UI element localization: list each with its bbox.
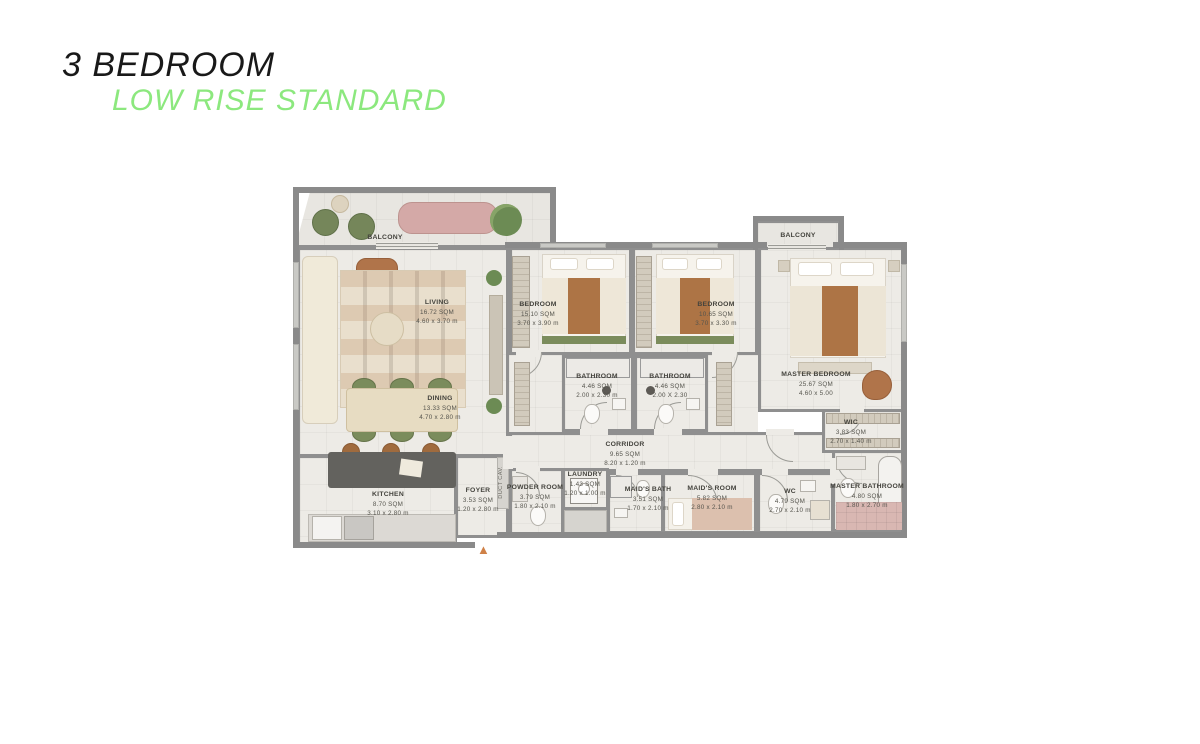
- sink: [836, 456, 866, 470]
- window: [293, 262, 299, 328]
- plant: [490, 204, 522, 236]
- door-opening: [616, 469, 638, 475]
- wardrobe: [636, 256, 652, 348]
- toilet: [658, 404, 674, 424]
- wall: [753, 216, 844, 221]
- wardrobe: [514, 362, 530, 426]
- window: [901, 264, 907, 342]
- wall: [293, 187, 556, 193]
- nightstand: [888, 260, 900, 272]
- pillow: [696, 258, 722, 270]
- balcony-table: [331, 195, 349, 213]
- room-label-wic: WIC 3.83 SQM 2.70 x 1.40 m: [830, 418, 871, 446]
- door-opening: [580, 428, 608, 435]
- window: [652, 243, 718, 248]
- sliding-door: [376, 243, 438, 248]
- service-shaft: [564, 510, 607, 534]
- door-opening: [516, 466, 540, 472]
- room-label-bedroom-2: BEDROOM 10.65 SQM 3.70 x 3.30 m: [695, 300, 736, 328]
- appliance: [312, 516, 342, 540]
- bed-runner: [568, 278, 600, 334]
- room-label-bathroom-2: BATHROOM 4.46 SQM 2.00 X 2.30: [649, 372, 691, 400]
- page-subtitle: LOW RISE STANDARD: [112, 84, 447, 118]
- armchair: [862, 370, 892, 400]
- door-opening: [840, 406, 864, 413]
- bed-runner: [822, 286, 858, 356]
- wall: [293, 542, 475, 548]
- wall: [497, 532, 907, 538]
- window: [540, 243, 606, 248]
- door-opening: [654, 428, 682, 435]
- room-label-laundry: LAUNDRY 1.43 SQM 1.20 x 1.00 m: [564, 470, 605, 498]
- room-label-maids-room: MAID'S ROOM 5.82 SQM 2.80 x 2.10 m: [687, 484, 736, 512]
- pillow: [586, 258, 614, 270]
- pillow: [672, 502, 684, 526]
- floorplan-page: 3 BEDROOM LOW RISE STANDARD: [0, 0, 1200, 744]
- sliding-door: [768, 245, 826, 249]
- door-opening: [762, 469, 788, 475]
- pillow: [798, 262, 832, 276]
- door-opening: [688, 469, 718, 475]
- appliance: [344, 516, 374, 540]
- kitchen-island: [328, 452, 456, 488]
- sofa: [302, 256, 338, 424]
- cutting-board: [399, 459, 423, 478]
- room-label-bathroom-1: BATHROOM 4.46 SQM 2.00 x 2.30 m: [576, 372, 618, 400]
- room-label-master-bathroom: MASTER BATHROOM 4.80 SQM 1.80 x 2.70 m: [830, 482, 904, 510]
- coffee-table: [370, 312, 404, 346]
- shower: [810, 500, 830, 520]
- plant: [486, 270, 502, 286]
- wardrobe: [716, 362, 732, 426]
- tv-unit: [489, 295, 503, 395]
- sun-lounger: [398, 202, 498, 234]
- wall: [753, 216, 758, 250]
- pillow: [550, 258, 578, 270]
- wall: [833, 242, 907, 248]
- room-label-bedroom-1: BEDROOM 15.10 SQM 3.70 x 3.90 m: [517, 300, 558, 328]
- room-label-dining: DINING 13.33 SQM 4.70 x 2.80 m: [419, 394, 460, 422]
- room-label-foyer: FOYER 3.53 SQM 1.20 x 2.80 m: [457, 486, 498, 514]
- plant: [486, 398, 502, 414]
- room-label-living: LIVING 16.72 SQM 4.60 x 3.70 m: [416, 298, 457, 326]
- room-label-wc: WC 4.79 SQM 2.70 x 2.10 m: [769, 487, 810, 515]
- pillow: [662, 258, 688, 270]
- duct-label: DUCT CAV.: [498, 466, 504, 499]
- room-label-powder-room: POWDER ROOM 3.79 SQM 1.80 x 2.10 m: [507, 483, 563, 511]
- bed-runner: [656, 336, 734, 344]
- nightstand: [778, 260, 790, 272]
- door-opening: [503, 436, 513, 469]
- toilet: [584, 404, 600, 424]
- page-title: 3 BEDROOM: [62, 46, 275, 85]
- room-label-corridor: CORRIDOR 9.65 SQM 8.20 x 1.20 m: [604, 440, 645, 468]
- balcony-chair: [312, 209, 339, 236]
- wall: [550, 187, 556, 249]
- room-label-kitchen: KITCHEN 8.70 SQM 3.10 x 2.80 m: [367, 490, 408, 518]
- window: [293, 344, 299, 410]
- entrance-arrow-icon: ▲: [477, 543, 490, 556]
- room-label-balcony-right: BALCONY: [780, 231, 815, 241]
- room-label-maids-bath: MAID'S BATH 3.51 SQM 1.70 x 2.10 m: [625, 485, 672, 513]
- bed-runner: [542, 336, 626, 344]
- room-label-balcony-left: BALCONY: [367, 233, 402, 243]
- room-label-master-bedroom: MASTER BEDROOM 25.67 SQM 4.60 x 5.00: [781, 370, 851, 398]
- pillow: [840, 262, 874, 276]
